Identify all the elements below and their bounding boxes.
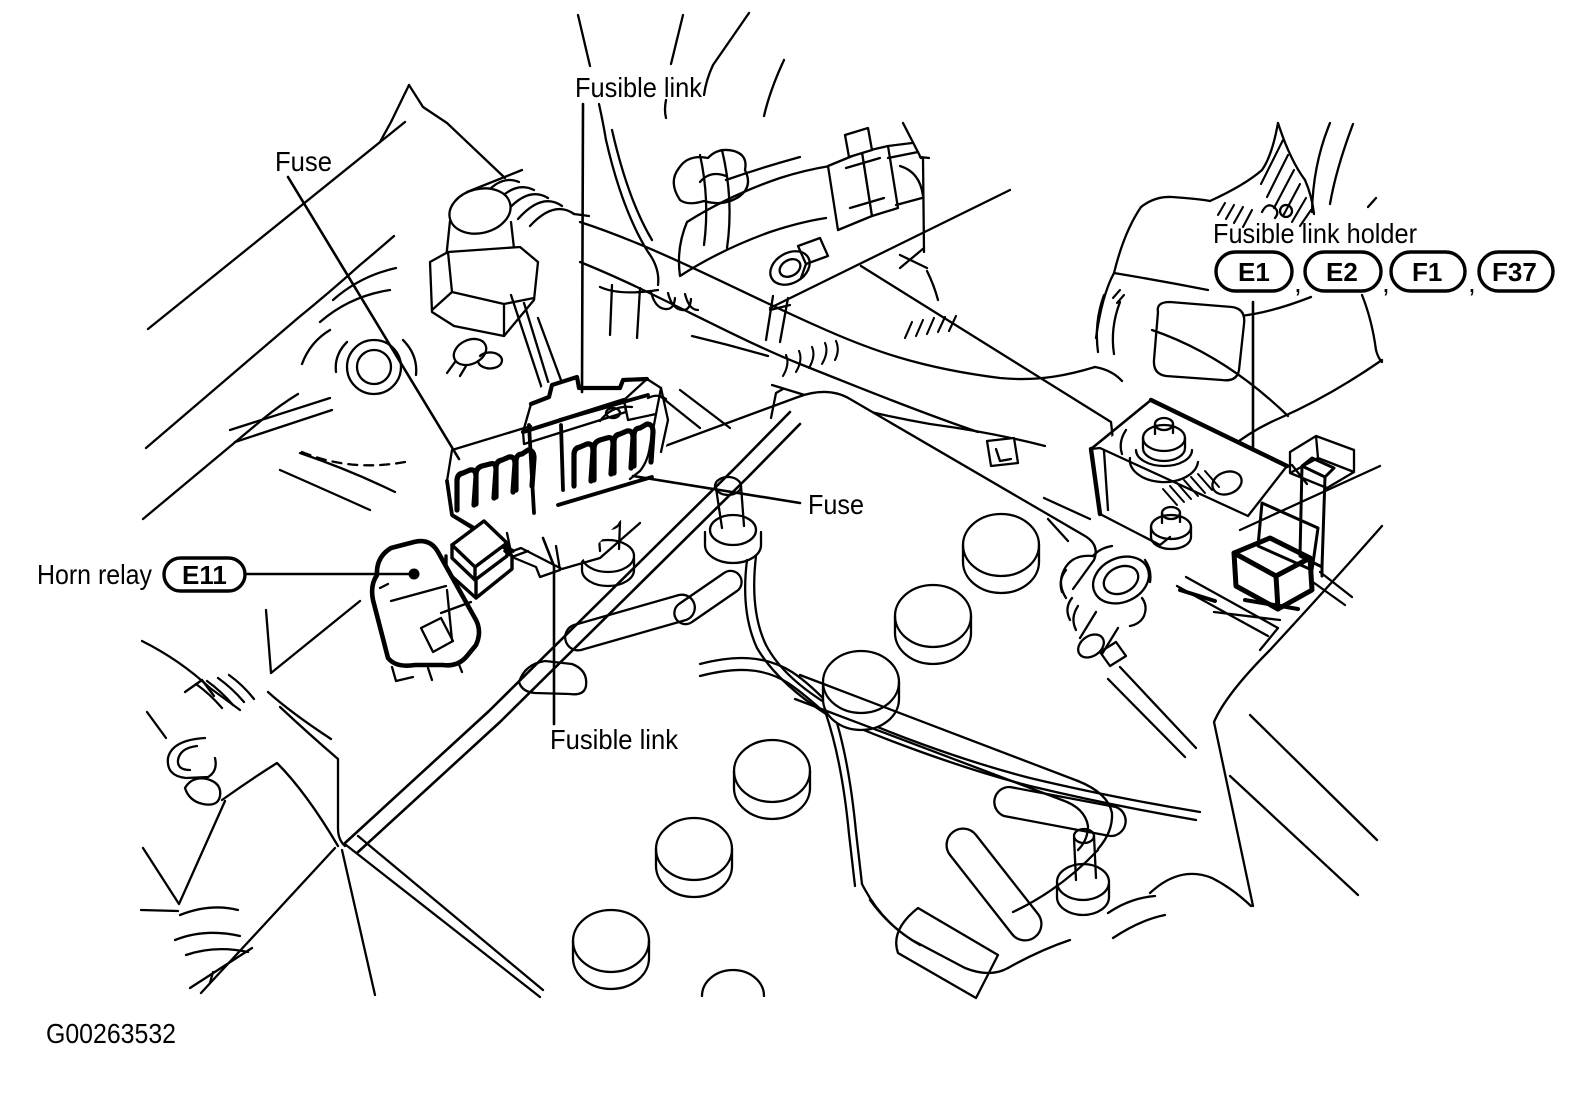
svg-text:,: , (1468, 267, 1476, 298)
svg-text:,: , (1294, 267, 1302, 298)
svg-text:E11: E11 (182, 560, 227, 590)
svg-text:Fuse: Fuse (808, 489, 864, 520)
svg-text:G00263532: G00263532 (46, 1018, 176, 1049)
svg-text:Fusible link holder: Fusible link holder (1213, 218, 1417, 249)
svg-text:Fusible link: Fusible link (575, 72, 703, 103)
svg-text:E2: E2 (1326, 257, 1358, 287)
svg-text:F1: F1 (1412, 257, 1442, 287)
svg-text:F37: F37 (1492, 257, 1537, 287)
svg-text:Horn relay: Horn relay (37, 559, 152, 590)
svg-text:,: , (1382, 267, 1390, 298)
svg-text:Fuse: Fuse (275, 146, 332, 177)
svg-text:E1: E1 (1238, 257, 1270, 287)
svg-text:Fusible link: Fusible link (550, 724, 679, 755)
